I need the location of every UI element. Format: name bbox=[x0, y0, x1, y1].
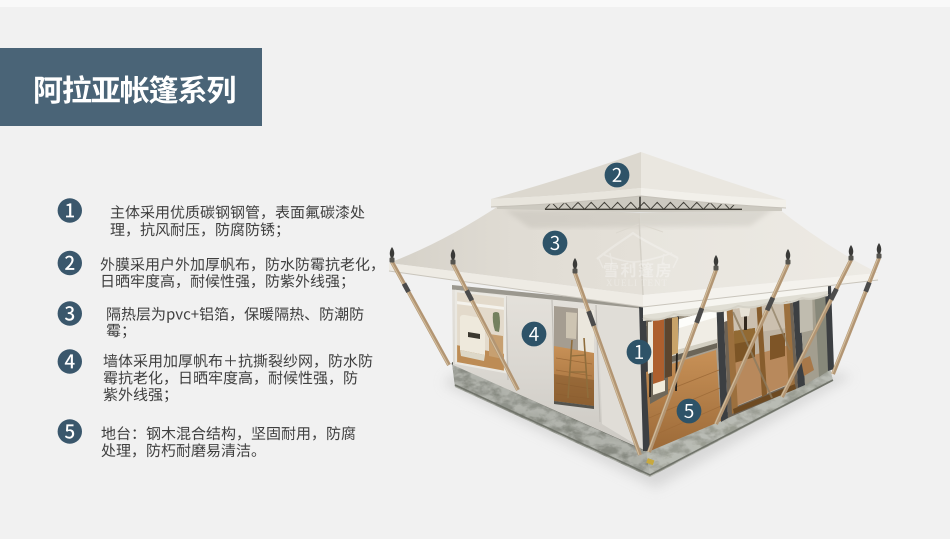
svg-text:XUELI TENT: XUELI TENT bbox=[606, 278, 668, 288]
